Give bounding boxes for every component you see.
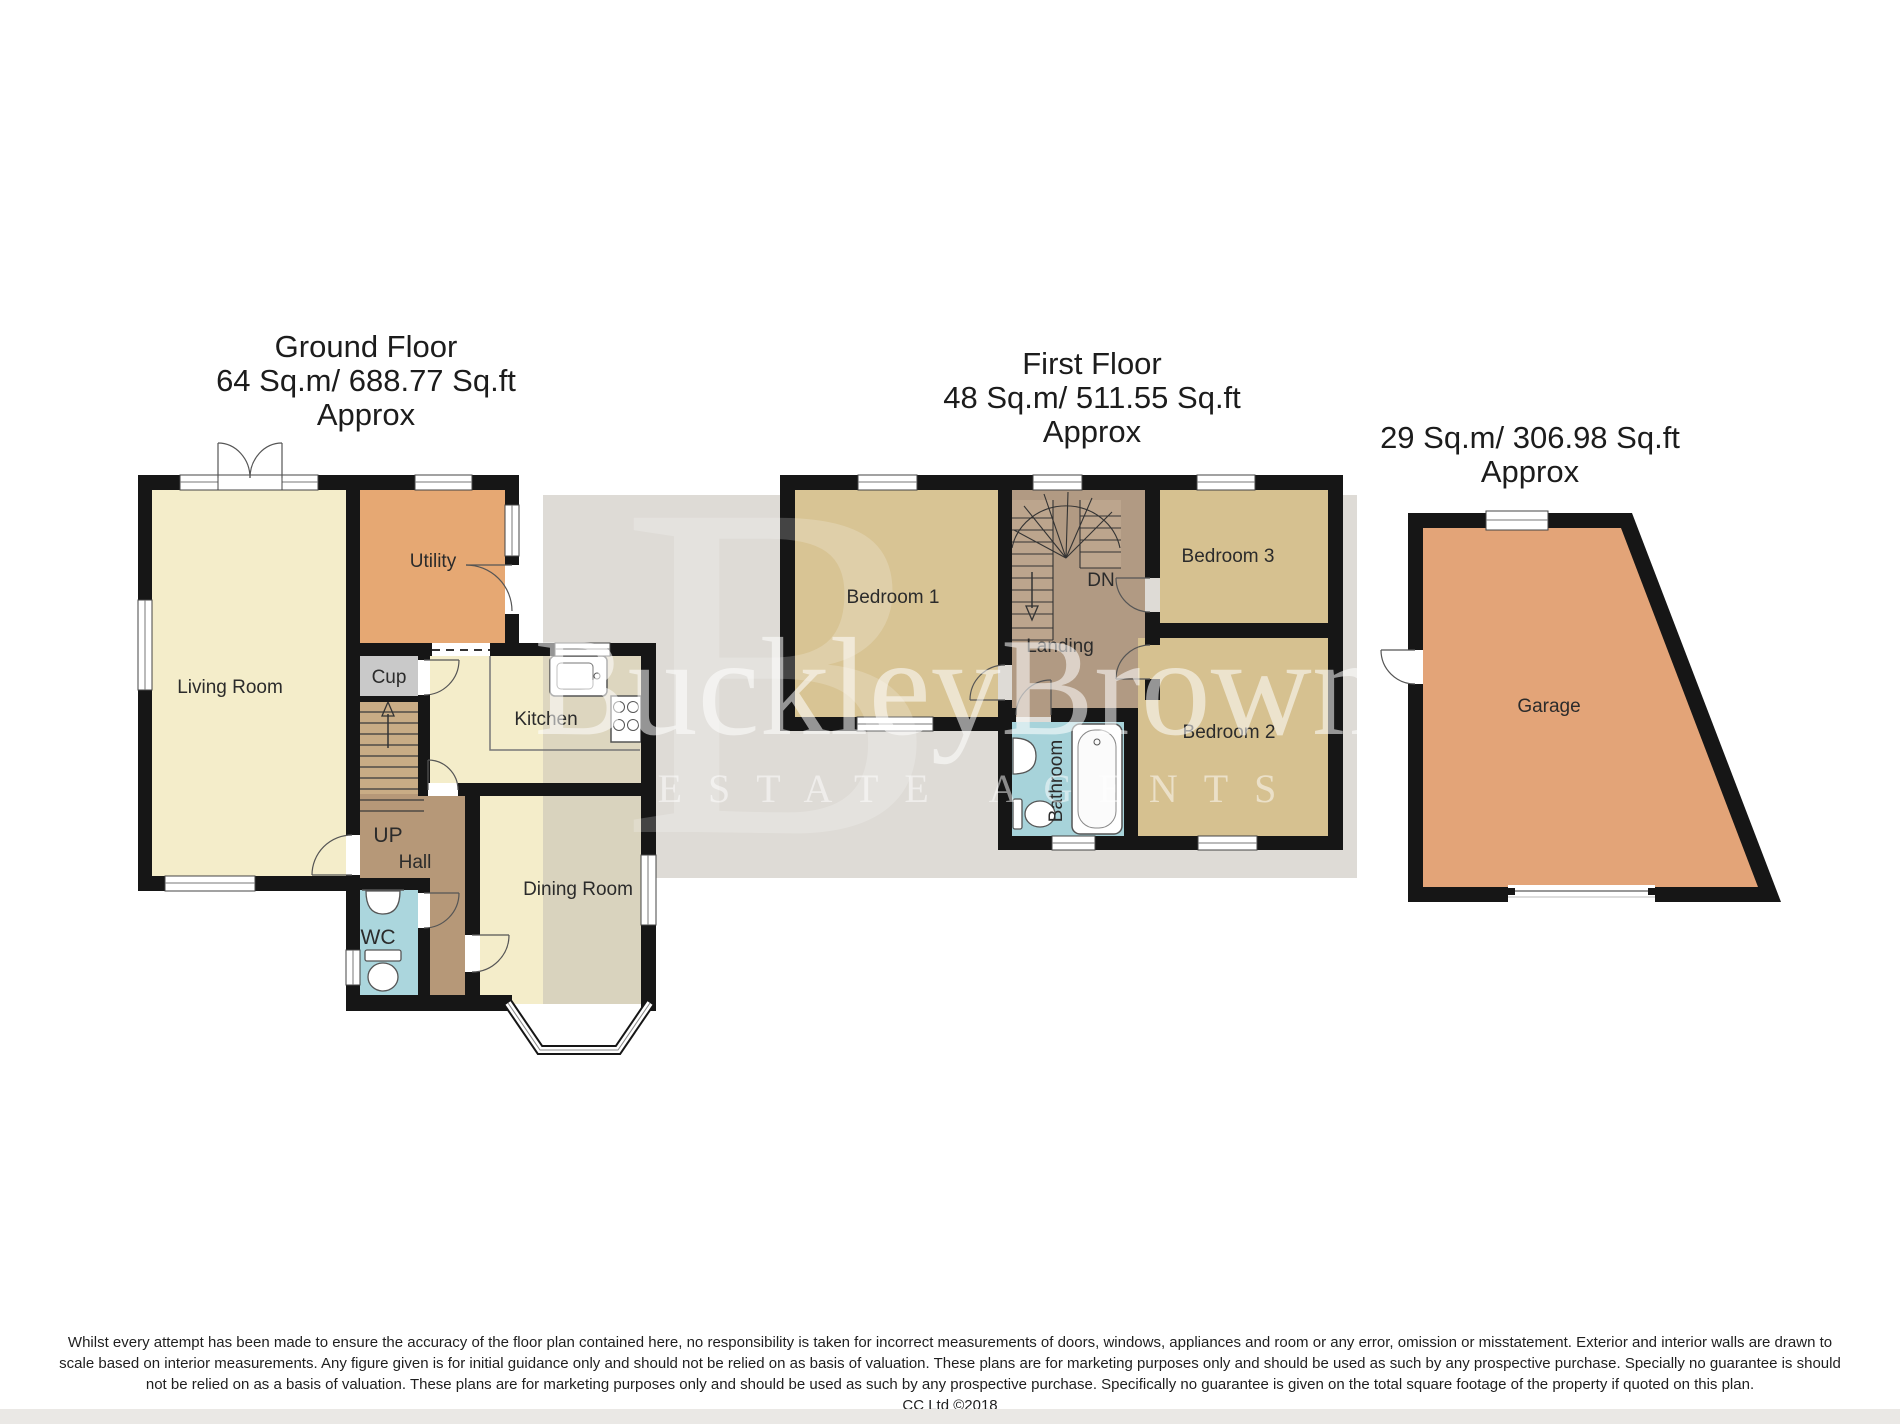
garage-title-line2: Approx	[1330, 455, 1730, 489]
kitchen-label: Kitchen	[514, 709, 577, 731]
disclaimer: Whilst every attempt has been made to en…	[0, 1332, 1900, 1416]
hall-label: Hall	[399, 852, 432, 874]
bottom-band	[0, 1409, 1900, 1424]
disclaimer-line2: scale based on interior measurements. An…	[0, 1353, 1900, 1374]
ground-floor-title: Ground Floor 64 Sq.m/ 688.77 Sq.ft Appro…	[166, 330, 566, 432]
bedroom1-label: Bedroom 1	[847, 587, 940, 609]
landing-label: Landing	[1026, 636, 1094, 658]
garage-title-line1: 29 Sq.m/ 306.98 Sq.ft	[1330, 421, 1730, 455]
garage-label: Garage	[1517, 696, 1580, 718]
cup-label: Cup	[372, 667, 407, 689]
ground-floor-title-line3: Approx	[166, 398, 566, 432]
utility-label: Utility	[410, 551, 456, 573]
up-label: UP	[373, 824, 402, 848]
disclaimer-line3: not be relied on as a basis of valuation…	[0, 1374, 1900, 1395]
bedroom2-label: Bedroom 2	[1183, 722, 1276, 744]
floorplan-page: Ground Floor 64 Sq.m/ 688.77 Sq.ft Appro…	[0, 0, 1900, 1424]
first-floor-title-line1: First Floor	[892, 347, 1292, 381]
first-floor-title: First Floor 48 Sq.m/ 511.55 Sq.ft Approx	[892, 347, 1292, 449]
floorplan-drawing	[0, 0, 1900, 1424]
dn-label: DN	[1087, 570, 1114, 592]
bathroom-label: Bathroom	[1046, 740, 1068, 822]
wc-label: WC	[361, 926, 396, 950]
garage-plan	[1381, 511, 1781, 904]
dining-room-label: Dining Room	[523, 879, 633, 901]
disclaimer-line1: Whilst every attempt has been made to en…	[0, 1332, 1900, 1353]
ground-floor-title-line1: Ground Floor	[166, 330, 566, 364]
bedroom3-label: Bedroom 3	[1182, 546, 1275, 568]
first-floor-title-line2: 48 Sq.m/ 511.55 Sq.ft	[892, 381, 1292, 415]
garage-title: 29 Sq.m/ 306.98 Sq.ft Approx	[1330, 421, 1730, 489]
living-room-label: Living Room	[177, 677, 283, 699]
ground-floor-title-line2: 64 Sq.m/ 688.77 Sq.ft	[166, 364, 566, 398]
first-floor-title-line3: Approx	[892, 415, 1292, 449]
